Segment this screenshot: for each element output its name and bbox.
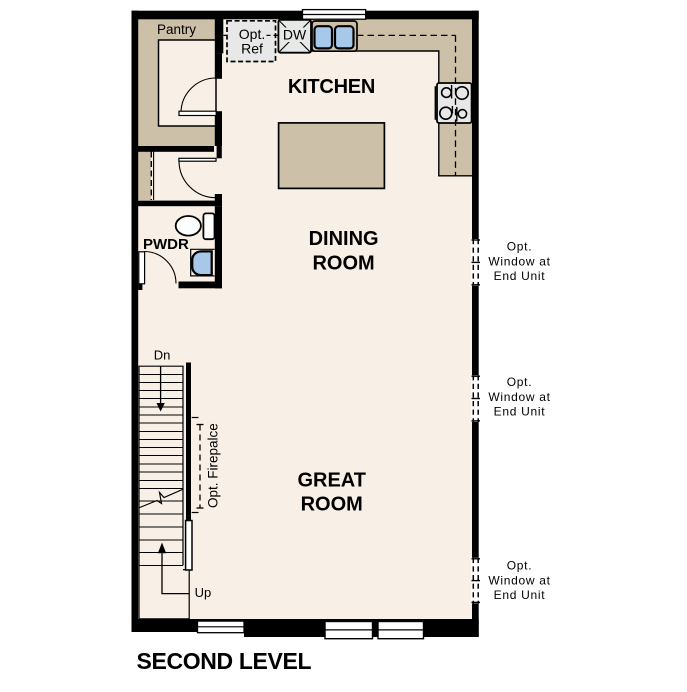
svg-text:Opt.: Opt. (507, 240, 532, 254)
svg-text:KITCHEN: KITCHEN (288, 76, 375, 98)
svg-text:Up: Up (195, 585, 212, 600)
svg-text:DW: DW (283, 27, 307, 43)
svg-text:End Unit: End Unit (494, 588, 546, 602)
svg-text:GREAT: GREAT (297, 469, 366, 491)
svg-text:End Unit: End Unit (494, 269, 546, 283)
svg-text:Opt.: Opt. (507, 559, 532, 573)
svg-text:Ref: Ref (241, 41, 263, 57)
svg-text:Dn: Dn (154, 348, 171, 363)
svg-text:ROOM: ROOM (301, 493, 363, 515)
svg-text:DINING: DINING (309, 228, 379, 250)
svg-text:Opt.: Opt. (239, 26, 265, 42)
svg-text:ROOM: ROOM (312, 253, 374, 275)
svg-text:PWDR: PWDR (143, 236, 189, 253)
svg-text:End Unit: End Unit (494, 405, 546, 419)
svg-text:SECOND LEVEL: SECOND LEVEL (137, 648, 312, 674)
svg-text:Window at: Window at (488, 390, 550, 404)
svg-text:Opt. Firepalce: Opt. Firepalce (206, 423, 221, 508)
svg-text:Window at: Window at (488, 254, 550, 268)
svg-text:Window at: Window at (488, 573, 550, 587)
svg-text:Opt.: Opt. (507, 375, 532, 389)
svg-text:Pantry: Pantry (157, 22, 196, 37)
